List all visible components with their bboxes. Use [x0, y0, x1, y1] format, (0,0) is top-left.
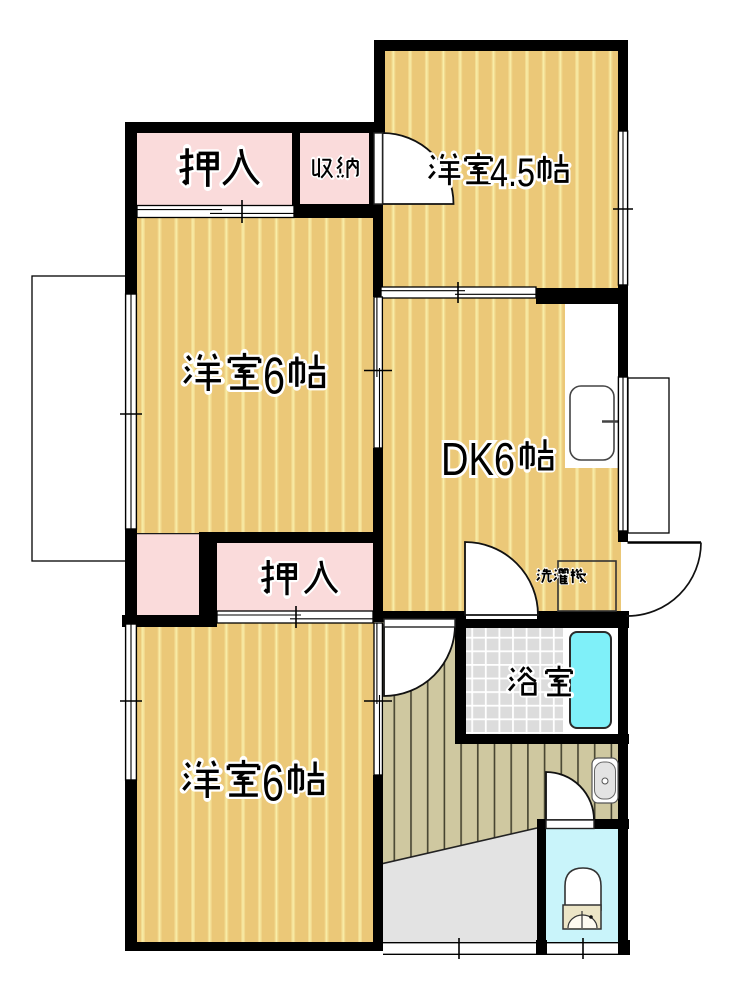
svg-text:6: 6: [263, 348, 285, 406]
svg-text:4.5: 4.5: [490, 151, 535, 195]
svg-text:6: 6: [262, 755, 284, 813]
svg-text:DK6: DK6: [441, 433, 515, 485]
